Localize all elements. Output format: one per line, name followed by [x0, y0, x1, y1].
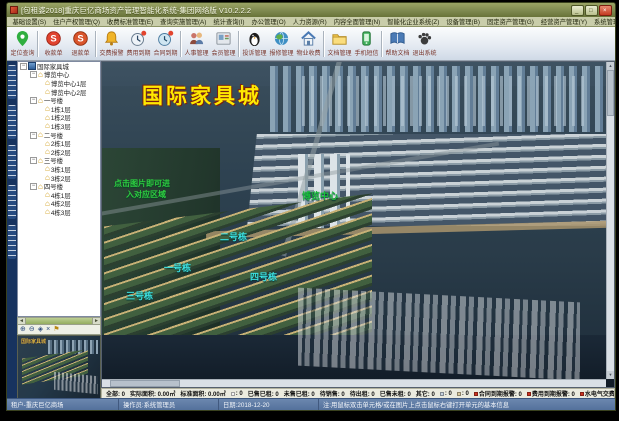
collapse-icon[interactable]: −: [20, 63, 27, 70]
house-icon: ⌂: [45, 148, 50, 156]
tree-node[interactable]: ⌂1栋2层: [18, 114, 100, 123]
house-icon: ⌂: [45, 191, 50, 199]
contract-alert-icon: [157, 30, 174, 47]
tree-node[interactable]: −⌂博览中心: [18, 71, 100, 80]
tree-node[interactable]: −⌂一号楼: [18, 96, 100, 105]
toolbar-separator: [180, 31, 182, 57]
close-icon: ×: [603, 8, 607, 14]
hint-cell: 注:用鼠标双击单元格/或在图片上点击鼠标右键打开单元的基本信息: [319, 399, 615, 410]
tree-node[interactable]: −⌂三号楼: [18, 157, 100, 166]
toolbar-button-member[interactable]: 会员管理: [210, 28, 237, 60]
collapse-icon[interactable]: −: [30, 97, 37, 104]
zoom-out-icon[interactable]: ⊖: [29, 326, 35, 334]
svg-text:S: S: [77, 34, 83, 45]
window-title: [包租婆2018]重庆巨亿商场资产管理智能化系统-集团网络版 V10.2.2.2: [21, 5, 570, 16]
house-icon: [300, 30, 317, 47]
globe-repair-icon: [273, 30, 290, 47]
status-alarm-fee: 费用到期报警: 0: [527, 389, 575, 398]
alarm-dot-icon: [527, 392, 531, 396]
maximize-icon: □: [589, 8, 593, 14]
scroll-left-arrow[interactable]: ◄: [18, 318, 26, 324]
menu-item[interactable]: 经营资产管理(Y): [537, 17, 590, 26]
house-icon: ⌂: [45, 122, 50, 130]
pan-icon[interactable]: ◈: [38, 326, 43, 334]
tree-node[interactable]: ⌂3栋1层: [18, 165, 100, 174]
vertical-tab[interactable]: [8, 225, 16, 259]
member-card-icon: [215, 30, 232, 47]
map-pin-icon: [14, 30, 31, 47]
tree-node[interactable]: ⌂4栋2层: [18, 200, 100, 209]
scroll-up-arrow[interactable]: ▲: [607, 62, 614, 70]
title-bar[interactable]: [包租婆2018]重庆巨亿商场资产管理智能化系统-集团网络版 V10.2.2.2…: [7, 3, 615, 17]
status-alarm-utility: 水电气交费报警: 0: [580, 389, 615, 398]
coin-in-icon: S: [45, 30, 62, 47]
status-segment: 其它: 0: [416, 389, 435, 398]
building-tree-panel[interactable]: −国际家具城 −⌂博览中心 ⌂博览中心1层 ⌂博览中心2层 −⌂一号楼 ⌂1栋1…: [17, 61, 101, 317]
map-vertical-scrollbar[interactable]: ▲ ▼: [606, 62, 614, 379]
tree-node[interactable]: ⌂1栋1层: [18, 105, 100, 114]
status-segment: 未售已租: 0: [284, 389, 315, 398]
minimap-label: 国际家具城: [21, 338, 46, 345]
menu-item[interactable]: 基础设置(S): [9, 17, 50, 26]
house-icon: ⌂: [38, 131, 43, 139]
tree-node[interactable]: ⌂4栋3层: [18, 208, 100, 217]
map-label-building-1[interactable]: 一号栋: [164, 261, 191, 274]
tenant-cell: 租户-重庆巨亿商场: [7, 399, 119, 410]
close-button[interactable]: ×: [599, 5, 612, 16]
toolbar-button-locate[interactable]: 定位查询: [9, 28, 36, 60]
book-icon: [389, 30, 406, 47]
map-panel[interactable]: 国际家具城 点击图片即可进 入对应区域 博览中心 二号栋 一号栋 四号栋 三号栋…: [101, 61, 615, 388]
map-label-building-3[interactable]: 三号栋: [126, 289, 153, 302]
toolbar-button-hr[interactable]: 人事管理: [183, 28, 210, 60]
toolbar-separator: [238, 31, 240, 57]
collapse-icon[interactable]: −: [30, 183, 37, 190]
map-label-building-4[interactable]: 四号栋: [250, 270, 277, 283]
tree-node[interactable]: ⌂3栋2层: [18, 174, 100, 183]
house-icon: ⌂: [38, 157, 43, 165]
map-label-building-2[interactable]: 二号栋: [220, 230, 247, 243]
zoom-in-icon[interactable]: ⊕: [20, 326, 26, 334]
tree-node[interactable]: −⌂二号楼: [18, 131, 100, 140]
scroll-right-arrow[interactable]: ►: [92, 318, 100, 324]
map-label-expo-center[interactable]: 博览中心: [302, 189, 338, 202]
tree-node[interactable]: ⌂博览中心2层: [18, 88, 100, 97]
status-segment: 待出租: 0: [350, 389, 375, 398]
toolbar-separator: [37, 31, 39, 57]
legend-swatch-icon: [440, 392, 444, 396]
status-segment: 已售已租: 0: [248, 389, 279, 398]
menu-item[interactable]: 住户产权管理(Q): [50, 17, 104, 26]
status-segment: 待销售: 0: [320, 389, 345, 398]
collapse-icon[interactable]: −: [30, 132, 37, 139]
tree-horizontal-scrollbar[interactable]: ◄ ►: [17, 317, 101, 325]
toolbar-button-help[interactable]: 帮助文档: [384, 28, 411, 60]
penguin-icon: [246, 30, 263, 47]
paw-exit-icon: [416, 30, 433, 47]
map-horizontal-scrollbar[interactable]: [102, 379, 606, 387]
coin-out-icon: S: [72, 30, 89, 47]
legend-swatch-icon: [231, 392, 235, 396]
menu-item[interactable]: 收费标准管理(E): [103, 17, 156, 26]
vertical-tab[interactable]: [8, 65, 16, 99]
minimize-button[interactable]: _: [571, 5, 584, 16]
svg-text:S: S: [50, 34, 56, 45]
alarm-dot-icon: [580, 392, 584, 396]
vertical-tab[interactable]: [8, 185, 16, 219]
collapse-icon[interactable]: −: [30, 71, 37, 78]
operator-cell: 操作员:系统管理员: [119, 399, 219, 410]
toolbar-button-refund[interactable]: S 退款单: [67, 28, 94, 60]
scrollbar-thumb[interactable]: [26, 318, 92, 324]
minimap-thumbnail[interactable]: 国际家具城: [17, 335, 101, 399]
toolbar-button-property-fee[interactable]: 物业收费: [295, 28, 322, 60]
house-icon: ⌂: [38, 97, 43, 105]
toolbar-button-sms[interactable]: 手机短信: [353, 28, 380, 60]
tree-node[interactable]: ⌂2栋1层: [18, 139, 100, 148]
vertical-tab[interactable]: [8, 105, 16, 139]
status-segment: : 0: [440, 391, 452, 397]
locate-flag-icon[interactable]: ⚑: [53, 326, 59, 334]
map-title: 国际家具城: [142, 80, 262, 110]
tree-node[interactable]: ⌂2栋2层: [18, 148, 100, 157]
folder-icon: [331, 30, 348, 47]
map-bottom-grid: [298, 288, 580, 381]
map-skyline-far: [302, 76, 584, 126]
vertical-tab[interactable]: [8, 145, 16, 179]
map-hint-line1: 点击图片即可进: [114, 178, 170, 189]
toolbar: 定位查询 S 收款单 S 退款单 交费报警 费用到期 合同到期 人事管理: [7, 27, 615, 61]
menu-item[interactable]: 设备管理(B): [443, 17, 484, 26]
sidebar-vertical-tabs[interactable]: [7, 61, 17, 399]
tree-node[interactable]: −⌂四号楼: [18, 182, 100, 191]
house-icon: ⌂: [45, 88, 50, 96]
collapse-icon[interactable]: −: [30, 157, 37, 164]
toolbar-separator: [95, 31, 97, 57]
minimize-icon: _: [575, 8, 578, 14]
bell-icon: [103, 30, 120, 47]
house-icon: ⌂: [38, 183, 43, 191]
toolbar-separator: [381, 31, 383, 57]
scrollbar-thumb[interactable]: [110, 380, 180, 387]
tree-node-root[interactable]: −国际家具城: [18, 62, 100, 71]
close-view-icon[interactable]: ×: [46, 326, 50, 334]
toolbar-button-fee-due[interactable]: 费用到期: [125, 28, 152, 60]
status-segment: : 0: [231, 391, 243, 397]
toolbar-button-documents[interactable]: 文档管理: [326, 28, 353, 60]
toolbar-button-contract-due[interactable]: 合同到期: [152, 28, 179, 60]
people-icon: [188, 30, 205, 47]
toolbar-button-receipt[interactable]: S 收款单: [40, 28, 67, 60]
status-segment: 已售未租: 0: [380, 389, 411, 398]
menu-item[interactable]: 统计查询(I): [210, 17, 248, 26]
tree-node[interactable]: ⌂博览中心1层: [18, 79, 100, 88]
minimap-grid-art: [54, 372, 98, 395]
menu-item[interactable]: 智能化企业系统(Z): [384, 17, 443, 26]
building-icon: [28, 62, 36, 70]
menu-item[interactable]: 内容全面管理(N): [330, 17, 384, 26]
minimap-toolbar: ⊕ ⊖ ◈ × ⚑: [17, 325, 101, 335]
menu-item[interactable]: 办公管理(O): [248, 17, 289, 26]
menu-item[interactable]: 查询实施管理(A): [157, 17, 210, 26]
status-alarm-contract: 合同到期报警: 0: [474, 389, 522, 398]
menu-item[interactable]: 系统管理(X): [591, 17, 616, 26]
house-icon: ⌂: [45, 174, 50, 182]
app-icon: [10, 6, 18, 14]
toolbar-separator: [323, 31, 325, 57]
menu-item[interactable]: 固定资产管理(G): [483, 17, 537, 26]
status-segment: : 0: [457, 391, 469, 397]
app-window: [包租婆2018]重庆巨亿商场资产管理智能化系统-集团网络版 V10.2.2.2…: [6, 2, 616, 411]
status-segment: 实际面积: 0.00㎡: [130, 389, 175, 398]
house-icon: ⌂: [38, 71, 43, 79]
tree-node[interactable]: ⌂4栋1层: [18, 191, 100, 200]
legend-swatch-icon: [457, 392, 461, 396]
scrollbar-thumb[interactable]: [607, 70, 614, 116]
status-segment: 标准面积: 0.00㎡: [180, 389, 225, 398]
menu-item[interactable]: 人力资源(R): [289, 17, 330, 26]
date-cell: 日期:2018-12-20: [219, 399, 319, 410]
alarm-dot-icon: [474, 392, 478, 396]
toolbar-button-repair[interactable]: 报修管理: [268, 28, 295, 60]
tree-node[interactable]: ⌂1栋3层: [18, 122, 100, 131]
status-segment: 全部: 0: [106, 389, 125, 398]
status-bar: 租户-重庆巨亿商场 操作员:系统管理员 日期:2018-12-20 注:用鼠标双…: [7, 398, 615, 410]
maximize-button[interactable]: □: [585, 5, 598, 16]
aerial-map-art: [102, 62, 614, 387]
house-icon: ⌂: [45, 208, 50, 216]
scroll-down-arrow[interactable]: ▼: [607, 371, 614, 379]
clock-alert-icon: [130, 30, 147, 47]
menu-bar: 基础设置(S) 住户产权管理(Q) 收费标准管理(E) 查询实施管理(A) 统计…: [7, 17, 615, 27]
toolbar-button-complaint[interactable]: 投诉管理: [241, 28, 268, 60]
map-hint-line2: 入对应区域: [126, 189, 166, 200]
main-area: −国际家具城 −⌂博览中心 ⌂博览中心1层 ⌂博览中心2层 −⌂一号楼 ⌂1栋1…: [7, 61, 615, 399]
phone-sms-icon: [358, 30, 375, 47]
toolbar-button-payment-alarm[interactable]: 交费报警: [98, 28, 125, 60]
toolbar-button-exit[interactable]: 退出系统: [411, 28, 438, 60]
